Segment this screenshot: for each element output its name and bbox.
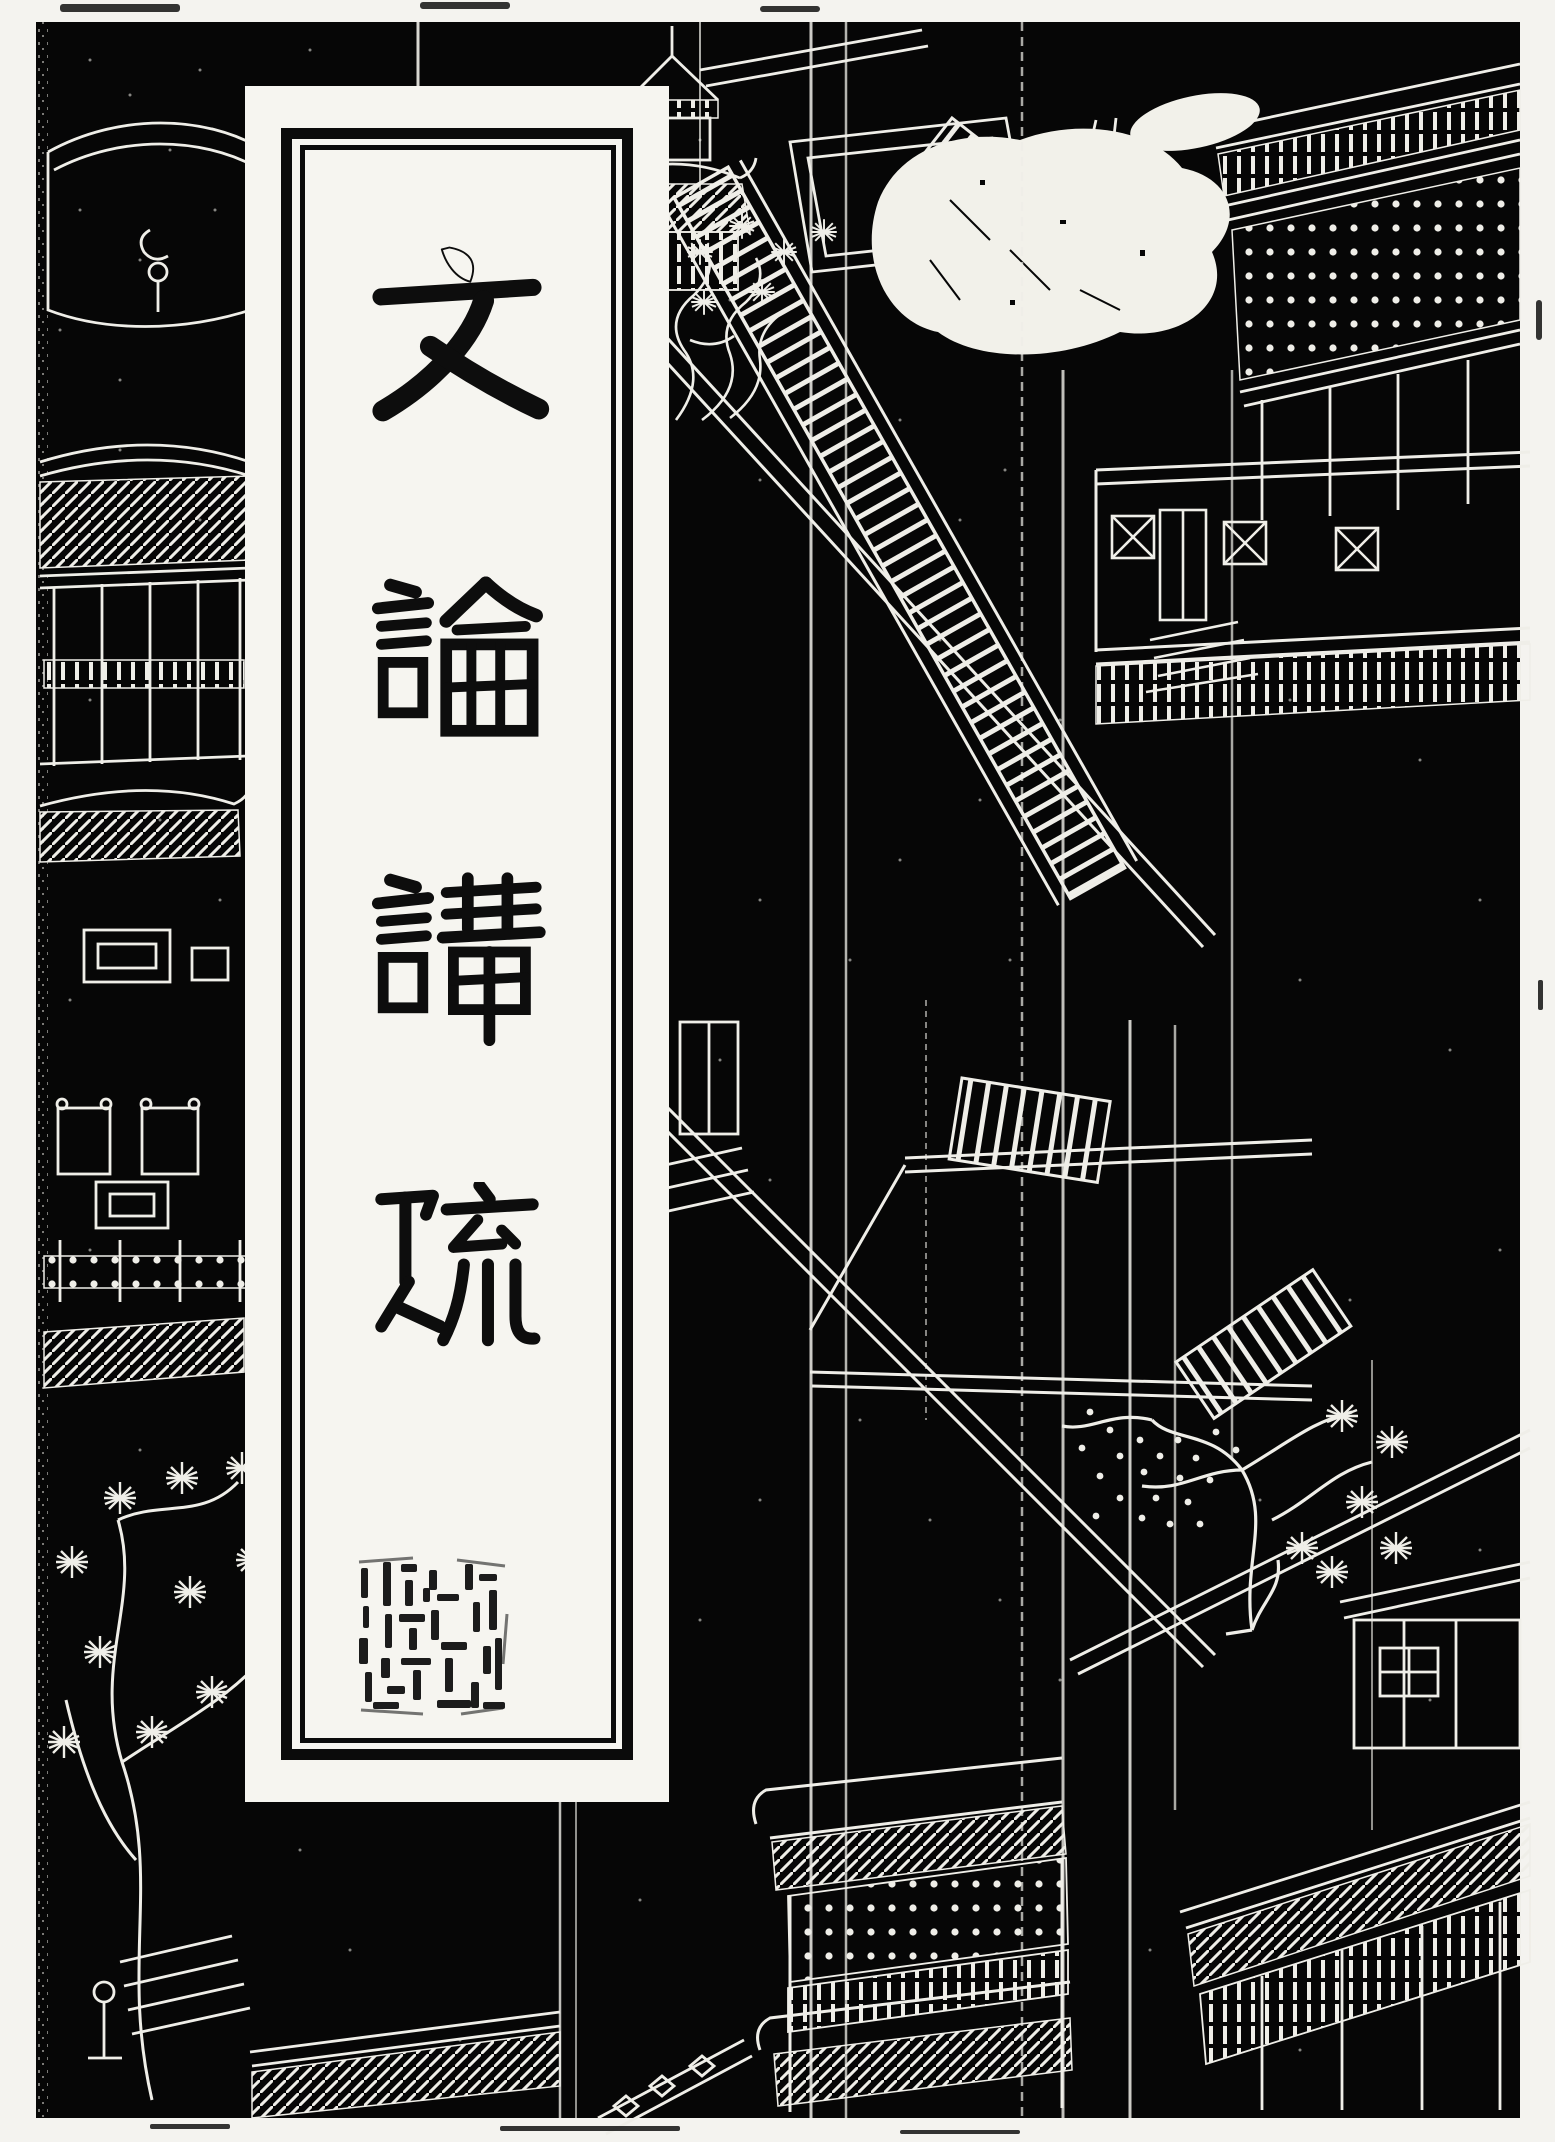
title-character-4 (368, 1182, 546, 1354)
title-character-2-text: 論 (245, 86, 246, 87)
title-character-3 (367, 866, 547, 1056)
title-text: 文論講疏 (245, 86, 246, 87)
title-character-2 (367, 568, 547, 764)
title-slip: 文論講疏 文 論 講 (245, 86, 669, 1802)
title-character-4-text: 疏 (245, 86, 246, 87)
cover-engraving (0, 0, 1555, 2142)
title-character-1-text: 文 (245, 86, 246, 87)
seal-impression (353, 1554, 513, 1720)
title-character-3-text: 講 (245, 86, 246, 87)
title-character-1 (362, 222, 552, 444)
book-cover-scan: 文論講疏 文 論 講 (0, 0, 1555, 2142)
